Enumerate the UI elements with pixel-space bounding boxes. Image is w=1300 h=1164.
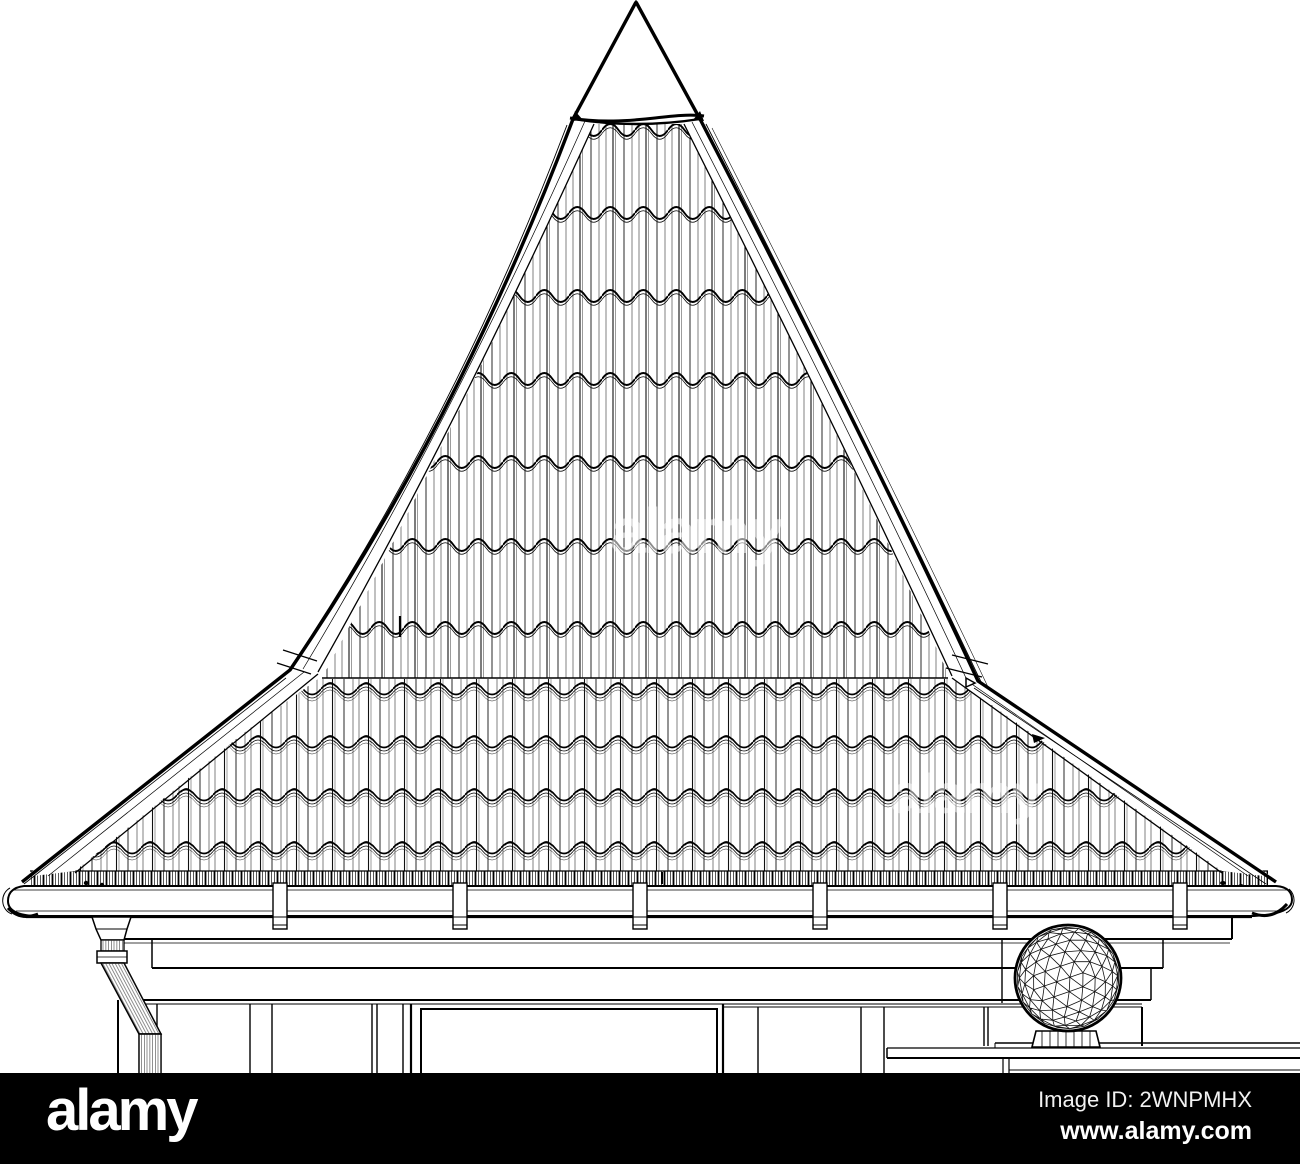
wall [118,939,1142,1075]
footer-credit-bar: alamy Image ID: 2WNPMHX www.alamy.com [0,1073,1300,1164]
lower-roof-tiles [40,675,1260,875]
gutter [3,883,1294,929]
roof-apex-cap [573,2,700,124]
gutter-body [8,886,1292,916]
opening-inner-frame [421,1009,717,1075]
upper-roof-tiles [280,110,980,690]
watermark-lower-right: alamy [891,762,1042,825]
roof [22,2,1276,888]
image-id-text: Image ID: 2WNPMHX [1038,1089,1252,1111]
stock-image-canvas: alamy alamy [0,0,1300,1164]
sphere-ornament [1015,925,1121,1047]
watermark-center: alamy [610,495,784,567]
downpipe [92,917,161,1074]
roof-line-art-illustration: alamy alamy [0,0,1300,1164]
framed-opening [411,1004,723,1075]
alamy-logo: alamy [46,1082,195,1140]
sphere-base [1032,1031,1100,1047]
eave-tile-ends [30,871,1268,886]
website-url-text: www.alamy.com [1038,1119,1252,1144]
footer-meta: Image ID: 2WNPMHX www.alamy.com [1038,1089,1252,1144]
